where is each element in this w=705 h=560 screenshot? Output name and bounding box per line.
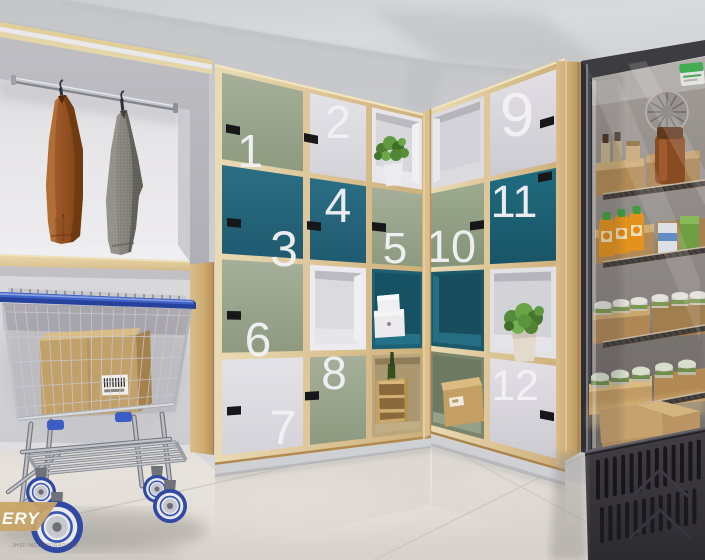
svg-text:6: 6 [245,314,272,367]
svg-text:5: 5 [383,224,407,273]
svg-text:8: 8 [321,347,347,399]
svg-text:1: 1 [237,125,263,177]
svg-text:12: 12 [491,362,539,410]
svg-text:7: 7 [270,402,297,455]
svg-text:11: 11 [491,176,538,227]
svg-text:9: 9 [500,81,534,150]
svg-text:JHSF INCORPORADORA: JHSF INCORPORADORA [12,543,78,549]
svg-text:10: 10 [426,221,476,272]
svg-text:4: 4 [325,180,352,233]
svg-text:2: 2 [325,96,351,148]
svg-text:ERY: ERY [2,509,40,528]
svg-text:3: 3 [270,221,298,277]
